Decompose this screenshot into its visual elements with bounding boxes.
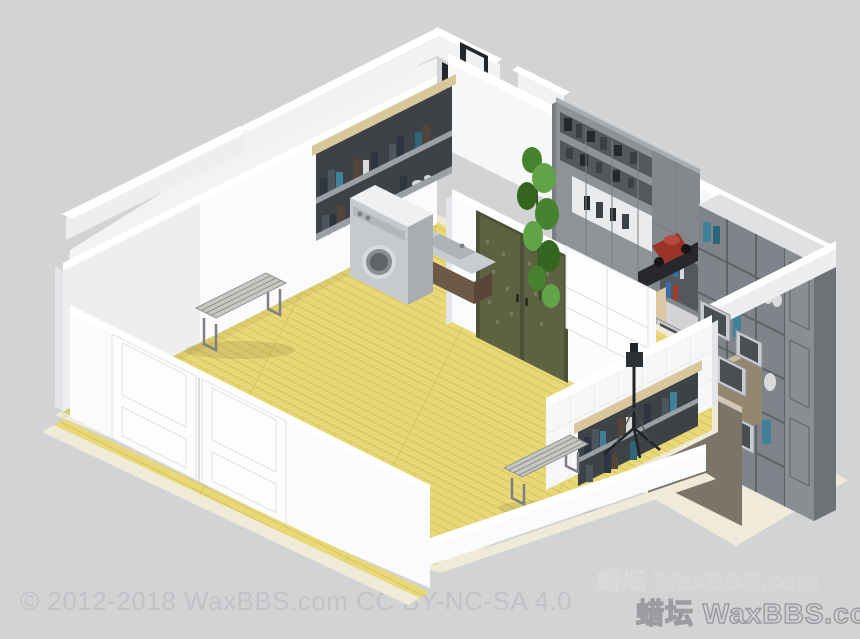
- isometric-scene: © 2012-2018 WaxBBS.com CC BY-NC-SA 4.0 蜡…: [0, 0, 860, 639]
- copyright-watermark: © 2012-2018 WaxBBS.com CC BY-NC-SA 4.0: [20, 586, 572, 616]
- brand-watermark-upper: 蜡坛 WaxBBS.com: [597, 568, 820, 595]
- tripod-head: [626, 352, 643, 367]
- door-handle: [516, 294, 519, 302]
- floorplan-render: © 2012-2018 WaxBBS.com CC BY-NC-SA 4.0 蜡…: [0, 0, 860, 639]
- door-handle: [525, 298, 528, 306]
- brand-watermark-lower: 蜡坛 WaxBBS.com: [636, 598, 860, 629]
